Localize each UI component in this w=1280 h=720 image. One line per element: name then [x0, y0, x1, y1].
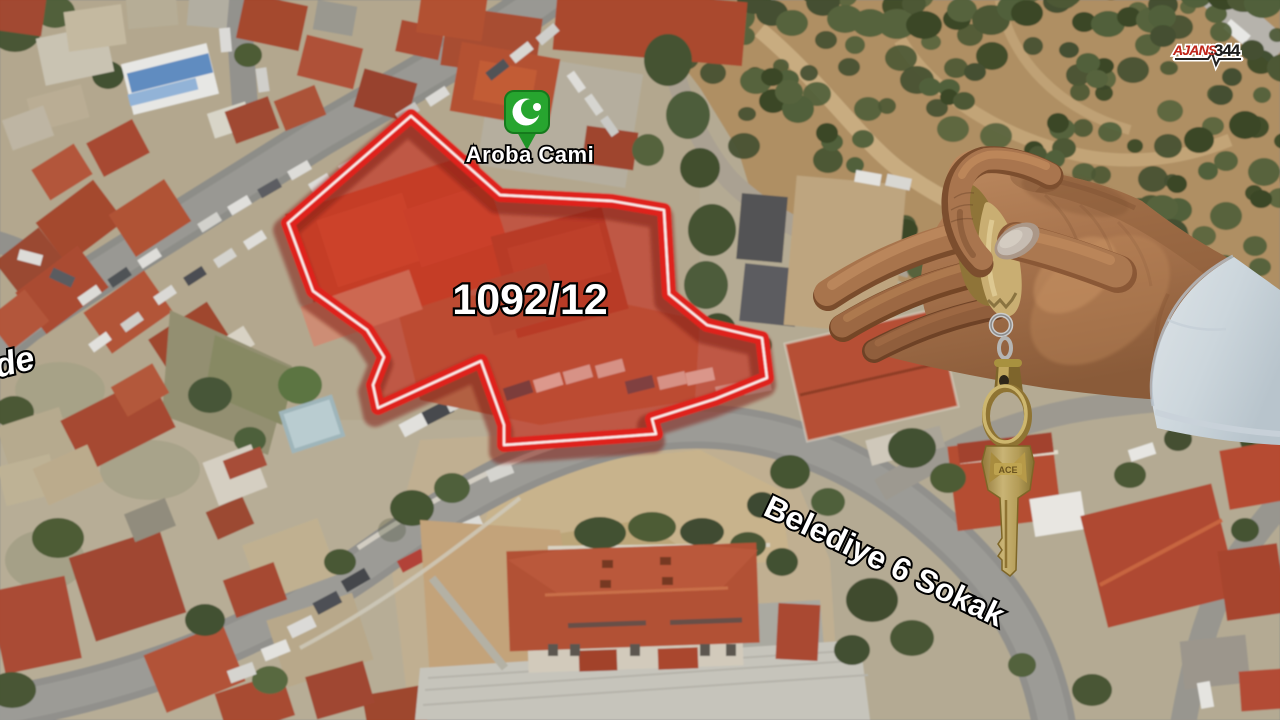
svg-text:Aroba Cami: Aroba Cami	[466, 142, 594, 167]
svg-text:ACE: ACE	[998, 465, 1017, 475]
svg-text:344: 344	[1214, 41, 1241, 60]
svg-text:1092/12: 1092/12	[452, 276, 607, 324]
svg-text:AJANS: AJANS	[1172, 42, 1218, 58]
